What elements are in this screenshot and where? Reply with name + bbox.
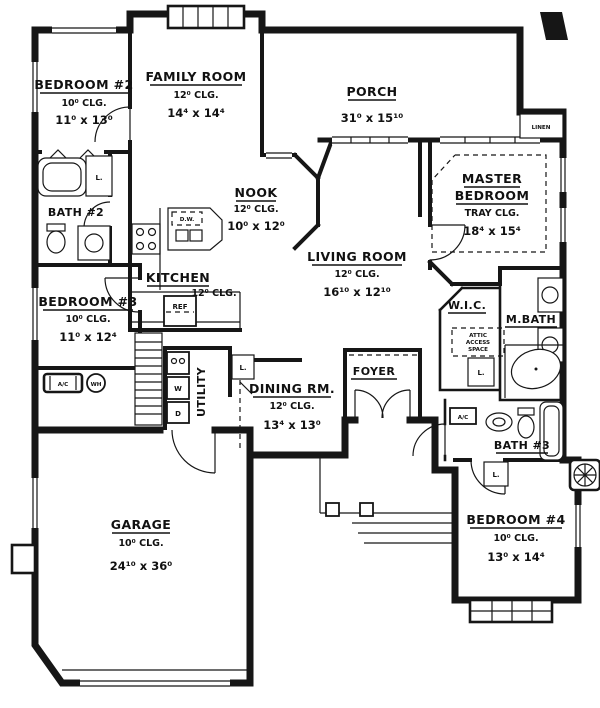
kitchen-island: D.W.	[168, 208, 222, 250]
floor-plan-canvas: L. D.W. REF	[0, 0, 600, 708]
left-wall-projection	[12, 545, 35, 573]
room-mbath: M.BATH	[505, 313, 557, 327]
room-nook: NOOK 12⁰ CLG. 10⁰ x 12⁰	[227, 185, 285, 233]
closet-label: L.	[492, 471, 499, 479]
room-kitchen: KITCHEN 12⁰ CLG.	[146, 270, 237, 299]
attic-access: ATTIC ACCESS SPACE	[452, 328, 504, 356]
front-double-doors	[355, 390, 410, 418]
washer-label: W	[174, 385, 182, 393]
room-foyer: FOYER	[351, 365, 397, 379]
window-bedroom2-top	[52, 25, 116, 35]
ac-label: A/C	[58, 382, 68, 388]
window-nook-bay	[266, 150, 292, 160]
ac-label: A/C	[458, 415, 468, 421]
ceiling-note: 12⁰ CLG.	[173, 90, 218, 101]
linen-label: LINEN	[532, 125, 551, 131]
window-garage-left	[30, 478, 40, 528]
bath3-door	[413, 424, 445, 456]
room-dims: 11⁰ x 12⁴	[59, 330, 117, 344]
room-dims: 14⁴ x 14⁴	[167, 106, 225, 120]
fan-icon	[570, 460, 600, 490]
attic-label-2: ACCESS	[466, 340, 490, 346]
room-name: NOOK	[234, 185, 278, 200]
room-dims: 13⁴ x 13⁰	[263, 418, 321, 432]
closet-label: L.	[239, 364, 246, 372]
room-dims: 11⁰ x 13⁰	[55, 113, 113, 127]
chimney	[540, 12, 568, 40]
room-name: DINING RM.	[249, 381, 335, 396]
room-dims: 10⁰ x 12⁰	[227, 219, 285, 233]
bathtub-icon-bath2	[38, 158, 86, 196]
ceiling-note: 10⁰ CLG.	[65, 314, 110, 325]
sink-icon-bath2	[78, 226, 110, 260]
ac-unit-icon-left: A/C	[44, 374, 82, 392]
room-bedroom-2: BEDROOM #2 10⁰ CLG. 11⁰ x 13⁰	[34, 77, 133, 127]
closet-label: L.	[95, 174, 102, 182]
ceiling-note: 12⁰ CLG.	[191, 288, 236, 299]
dishwasher-label: D.W.	[180, 217, 195, 223]
room-dims: 24¹⁰ x 36⁰	[110, 559, 173, 573]
water-heater-label: WH	[91, 382, 102, 388]
room-garage: GARAGE 10⁰ CLG. 24¹⁰ x 36⁰	[110, 517, 173, 573]
window-family-bay	[168, 6, 244, 28]
room-name: BATH #2	[48, 206, 104, 219]
dryer-label: D	[175, 410, 181, 418]
ceiling-note: TRAY CLG.	[465, 208, 520, 219]
refrigerator-icon: REF	[164, 296, 196, 326]
stairs	[135, 333, 162, 425]
room-dims: 31⁰ x 15¹⁰	[341, 111, 404, 125]
attic-label-1: ATTIC	[469, 333, 487, 339]
room-bedroom-3: BEDROOM #3 10⁰ CLG. 11⁰ x 12⁴	[38, 294, 137, 344]
room-dims: 18⁴ x 15⁴	[463, 224, 521, 238]
ceiling-note: 10⁰ CLG.	[118, 538, 163, 549]
window-bedroom4-right	[573, 505, 583, 547]
ceiling-note: 10⁰ CLG.	[61, 98, 106, 109]
room-bedroom-4: BEDROOM #4 10⁰ CLG. 13⁰ x 14⁴	[466, 512, 565, 564]
toilet-icon-bath2	[47, 224, 65, 253]
washer-icon: W	[167, 377, 189, 399]
closet-bath2: L.	[86, 156, 112, 196]
room-name: BEDROOM #4	[466, 512, 565, 527]
room-name: FOYER	[353, 365, 396, 378]
room-name: KITCHEN	[146, 270, 210, 285]
room-name-line2: BEDROOM	[455, 188, 530, 203]
room-name: FAMILY ROOM	[145, 69, 246, 84]
room-family-room: FAMILY ROOM 12⁰ CLG. 14⁴ x 14⁴	[145, 69, 246, 120]
room-name: PORCH	[346, 84, 397, 99]
water-heater-icon: WH	[87, 374, 105, 392]
master-door	[430, 225, 465, 260]
closet-bath3-hall: L.	[484, 462, 508, 486]
room-bath-2: BATH #2	[48, 206, 104, 219]
refrigerator-label: REF	[173, 303, 188, 311]
glazing-living-top	[332, 135, 408, 145]
room-wic: W.I.C.	[448, 299, 486, 313]
room-bath-3: BATH #3	[494, 439, 550, 453]
closet-label: L.	[477, 369, 484, 377]
window-master-right-2	[558, 208, 568, 242]
vanity-icon-mbath-1	[538, 278, 563, 312]
window-bedroom4-bay	[470, 600, 552, 622]
room-name: GARAGE	[111, 517, 171, 532]
ceiling-note: 12⁰ CLG.	[233, 204, 278, 215]
ceiling-note: 10⁰ CLG.	[493, 533, 538, 544]
room-name-line1: MASTER	[462, 171, 522, 186]
room-name: BATH #3	[494, 439, 550, 452]
room-name: UTILITY	[195, 366, 208, 417]
sink-icon-bath3	[486, 413, 512, 431]
dryer-icon: D	[167, 402, 189, 423]
ceiling-note: 12⁰ CLG.	[334, 269, 379, 280]
room-master-bedroom: MASTER BEDROOM TRAY CLG. 18⁴ x 15⁴	[455, 171, 530, 238]
room-name: LIVING ROOM	[307, 249, 407, 264]
room-living-room: LIVING ROOM 12⁰ CLG. 16¹⁰ x 12¹⁰	[307, 249, 407, 299]
room-dining: DINING RM. 12⁰ CLG. 13⁴ x 13⁰	[249, 381, 335, 432]
linen-closet: LINEN	[520, 114, 563, 138]
laundry-tub-icon	[167, 352, 189, 374]
utility-garage-door	[172, 430, 215, 473]
room-name: W.I.C.	[448, 299, 486, 312]
ceiling-note: 12⁰ CLG.	[269, 401, 314, 412]
room-name: BEDROOM #3	[38, 294, 137, 309]
ac-unit-icon-hall: A/C	[450, 408, 476, 424]
exterior-walls	[35, 12, 578, 683]
room-dims: 13⁰ x 14⁴	[487, 550, 545, 564]
window-master-right-1	[558, 158, 568, 192]
attic-label-3: SPACE	[468, 347, 488, 353]
room-utility: UTILITY	[195, 366, 208, 417]
room-porch: PORCH 31⁰ x 15¹⁰	[341, 84, 404, 125]
room-name: M.BATH	[506, 313, 556, 326]
floor-plan: L. D.W. REF	[0, 0, 600, 708]
toilet-icon-bath3	[518, 408, 534, 438]
room-dims: 16¹⁰ x 12¹⁰	[323, 285, 391, 299]
garage-door	[62, 670, 248, 688]
range-icon	[132, 224, 160, 254]
closet-mbath-hall: L.	[468, 358, 494, 386]
room-name: BEDROOM #2	[34, 77, 133, 92]
